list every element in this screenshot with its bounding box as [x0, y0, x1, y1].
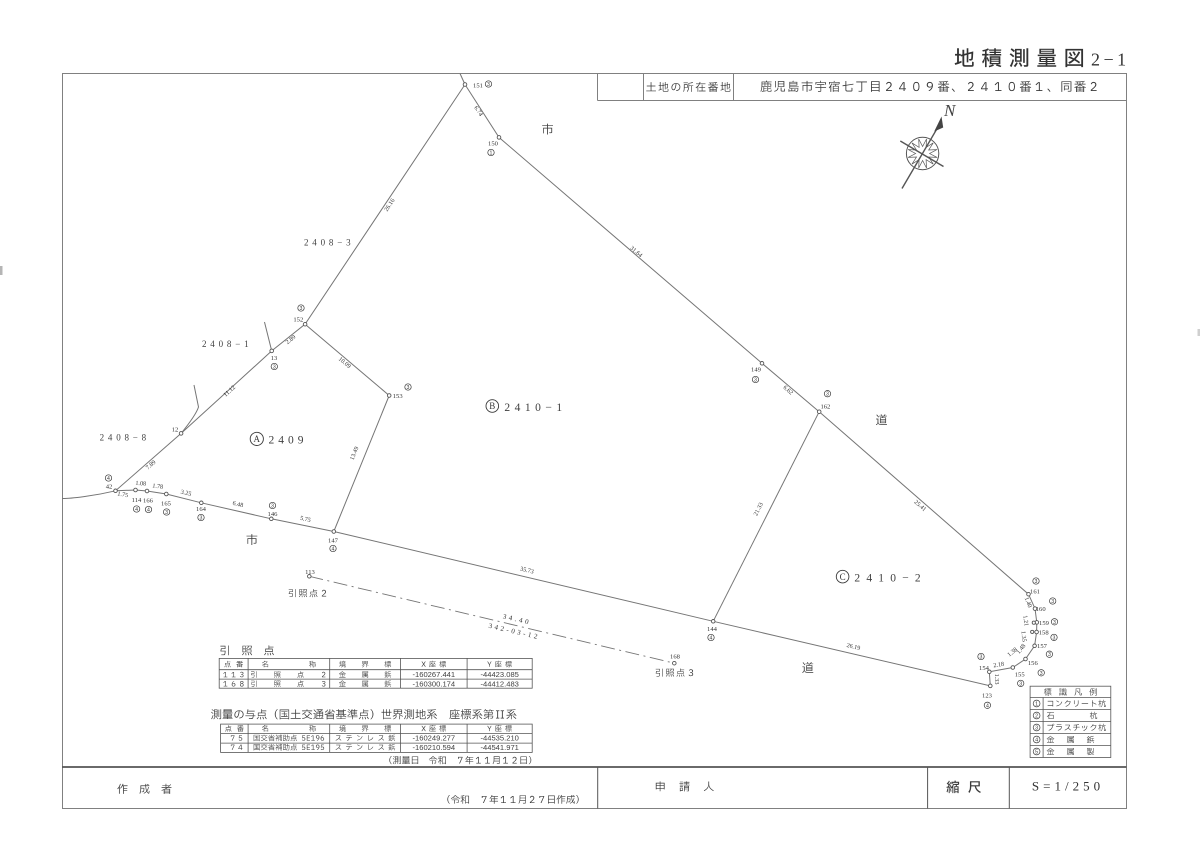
svg-text:1: 1: [490, 151, 493, 157]
svg-text:149: 149: [751, 367, 762, 374]
svg-text:4: 4: [135, 507, 138, 513]
svg-text:162: 162: [820, 403, 830, 410]
svg-text:3: 3: [826, 392, 829, 398]
svg-text:13: 13: [271, 355, 278, 362]
svg-text:1: 1: [1035, 701, 1038, 707]
svg-text:165: 165: [161, 501, 172, 508]
svg-text:31.64: 31.64: [628, 245, 643, 259]
svg-text:3: 3: [980, 655, 983, 661]
svg-text:160: 160: [1036, 606, 1047, 613]
svg-text:146: 146: [268, 511, 279, 518]
svg-text:-160267.441: -160267.441: [412, 670, 455, 679]
svg-text:2408−8: 2408−8: [100, 432, 150, 442]
svg-text:3: 3: [1040, 671, 1043, 677]
svg-text:B: B: [489, 401, 495, 411]
svg-text:-44423.085: -44423.085: [480, 670, 518, 679]
svg-text:6.74: 6.74: [472, 105, 484, 118]
svg-text:157: 157: [1037, 643, 1048, 650]
svg-text:3: 3: [1048, 652, 1051, 658]
svg-text:152: 152: [293, 317, 303, 324]
svg-text:3: 3: [1019, 681, 1022, 687]
svg-text:2.18: 2.18: [993, 661, 1005, 670]
svg-text:3: 3: [1051, 599, 1054, 605]
svg-text:123: 123: [982, 693, 993, 700]
svg-text:4: 4: [986, 703, 989, 709]
svg-text:153: 153: [393, 393, 404, 400]
svg-text:2409: 2409: [269, 435, 308, 447]
svg-text:13.49: 13.49: [349, 446, 361, 462]
svg-text:156: 156: [1028, 660, 1039, 667]
svg-text:154: 154: [979, 665, 990, 672]
svg-text:4: 4: [332, 547, 335, 553]
svg-text:-44412.483: -44412.483: [480, 679, 518, 688]
svg-text:159: 159: [1039, 620, 1050, 627]
svg-text:11.12: 11.12: [222, 384, 237, 398]
svg-text:A: A: [254, 434, 261, 444]
svg-text:2408−3: 2408−3: [304, 238, 354, 248]
svg-text:1.33: 1.33: [993, 674, 1000, 685]
svg-text:C: C: [840, 572, 846, 582]
svg-text:1.75: 1.75: [117, 490, 129, 499]
svg-text:1.08: 1.08: [135, 480, 146, 488]
svg-text:4: 4: [107, 476, 110, 482]
svg-text:158: 158: [1039, 630, 1050, 637]
svg-text:-44535.210: -44535.210: [480, 734, 518, 743]
svg-text:2408−1: 2408−1: [202, 339, 252, 349]
svg-text:155: 155: [1015, 671, 1026, 678]
svg-text:150: 150: [488, 141, 499, 148]
svg-text:1.21: 1.21: [1021, 615, 1029, 627]
svg-text:26.19: 26.19: [846, 642, 861, 652]
svg-text:2: 2: [1035, 713, 1038, 719]
svg-text:-44541.971: -44541.971: [480, 743, 518, 752]
svg-text:7.89: 7.89: [145, 459, 158, 471]
svg-text:4: 4: [710, 636, 713, 642]
svg-text:21.33: 21.33: [752, 502, 765, 518]
svg-text:166: 166: [143, 498, 154, 505]
svg-text:3: 3: [487, 82, 490, 88]
svg-text:4: 4: [147, 508, 150, 514]
svg-text:25.41: 25.41: [912, 499, 927, 513]
svg-text:3: 3: [200, 516, 203, 522]
svg-text:164: 164: [196, 506, 207, 513]
svg-text:S=1/250: S=1/250: [1032, 779, 1104, 794]
svg-text:2410−1: 2410−1: [504, 402, 566, 414]
svg-text:6.48: 6.48: [232, 500, 244, 509]
svg-text:1.48: 1.48: [1015, 643, 1027, 656]
svg-text:1.35: 1.35: [1019, 631, 1027, 643]
svg-text:5: 5: [1035, 749, 1038, 755]
svg-text:10.09: 10.09: [337, 356, 352, 370]
svg-text:3: 3: [407, 385, 410, 391]
svg-text:2−1: 2−1: [1091, 50, 1130, 70]
svg-text:26.16: 26.16: [383, 197, 397, 212]
svg-text:3: 3: [1035, 579, 1038, 585]
svg-text:2.89: 2.89: [284, 334, 297, 346]
svg-text:3: 3: [271, 504, 274, 510]
svg-text:147: 147: [328, 538, 339, 545]
svg-text:3: 3: [165, 510, 168, 516]
svg-text:1.78: 1.78: [152, 482, 164, 490]
svg-text:42: 42: [106, 484, 113, 491]
svg-text:114: 114: [132, 497, 142, 504]
svg-text:3: 3: [300, 306, 303, 312]
svg-text:113: 113: [305, 569, 315, 576]
svg-text:12: 12: [172, 427, 179, 434]
svg-text:4: 4: [1035, 737, 1038, 743]
svg-text:161: 161: [1030, 589, 1040, 596]
svg-text:3: 3: [1035, 725, 1038, 731]
svg-text:1.40: 1.40: [1023, 596, 1034, 609]
svg-text:-160300.174: -160300.174: [412, 679, 455, 688]
svg-text:3: 3: [1053, 635, 1056, 641]
svg-text:151: 151: [473, 83, 483, 90]
svg-text:-160249.277: -160249.277: [412, 734, 455, 743]
svg-text:5.75: 5.75: [299, 515, 311, 524]
svg-text:3: 3: [273, 365, 276, 371]
svg-text:3: 3: [1053, 620, 1056, 626]
svg-text:3: 3: [754, 378, 757, 384]
svg-text:34.40: 34.40: [502, 612, 532, 626]
svg-text:N: N: [943, 101, 957, 120]
svg-text:168: 168: [670, 654, 681, 661]
svg-text:3.25: 3.25: [180, 489, 192, 498]
svg-text:6.62: 6.62: [782, 384, 795, 396]
svg-text:-160210.594: -160210.594: [412, 743, 455, 752]
svg-text:2410−2: 2410−2: [854, 573, 926, 585]
svg-text:35.73: 35.73: [519, 566, 534, 576]
svg-text:144: 144: [707, 626, 718, 633]
